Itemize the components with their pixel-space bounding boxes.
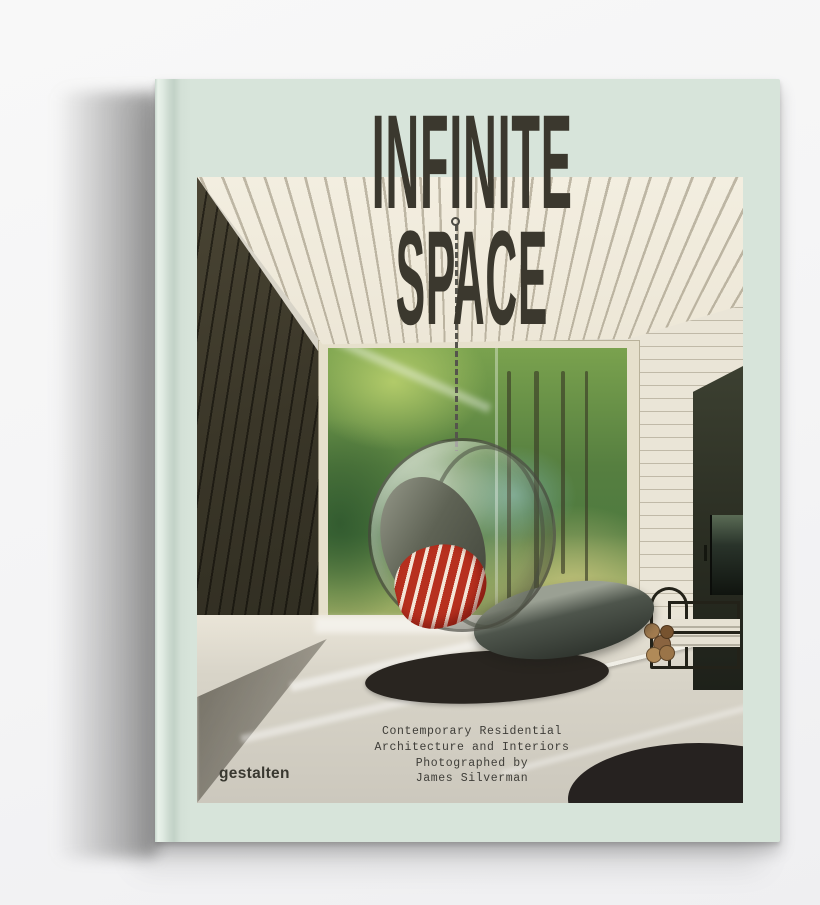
publisher-logo: gestalten: [219, 765, 290, 783]
firebox-opening: [710, 515, 743, 595]
log-rack: [644, 585, 743, 671]
hanging-chain: [455, 225, 458, 451]
glass-reflection: [328, 348, 492, 413]
firebox-handle: [704, 545, 707, 561]
tree-trunk: [561, 371, 565, 575]
book-cover: INFINITE SPACE Contemporary Residential …: [155, 79, 780, 842]
bubble-chair: [368, 438, 556, 632]
log-rack-bar: [668, 631, 740, 634]
cover-photo: [197, 177, 743, 803]
chain-hook: [451, 217, 460, 226]
tree-trunk: [585, 371, 588, 597]
book-cast-shadow: [56, 92, 158, 858]
log: [660, 625, 674, 639]
product-photo-scene: INFINITE SPACE Contemporary Residential …: [0, 0, 820, 905]
subtitle-line: Architecture and Interiors: [164, 740, 780, 756]
log: [659, 645, 675, 661]
subtitle-line: Contemporary Residential: [164, 724, 780, 740]
